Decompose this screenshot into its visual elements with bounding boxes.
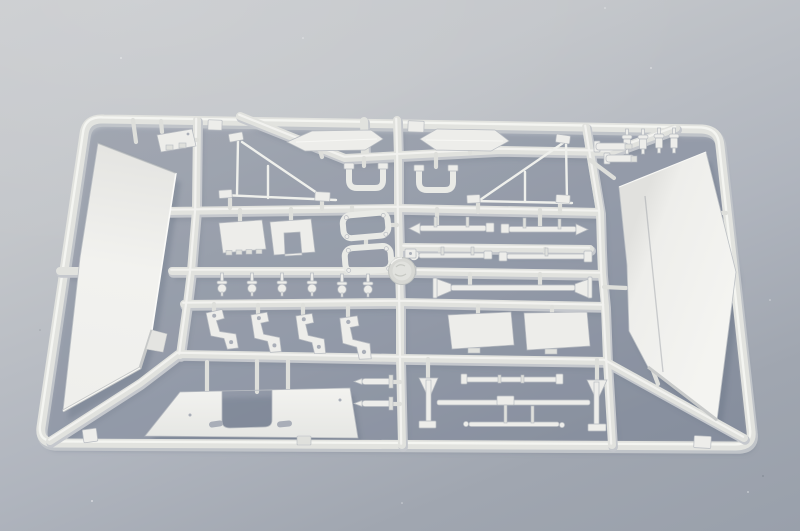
part-gate-tab (297, 436, 311, 445)
part-medallion (389, 258, 416, 285)
photo-background (0, 0, 800, 531)
part-hatch-solid (219, 220, 266, 255)
sprue-photo (0, 0, 800, 531)
part-fender-right (420, 129, 509, 151)
